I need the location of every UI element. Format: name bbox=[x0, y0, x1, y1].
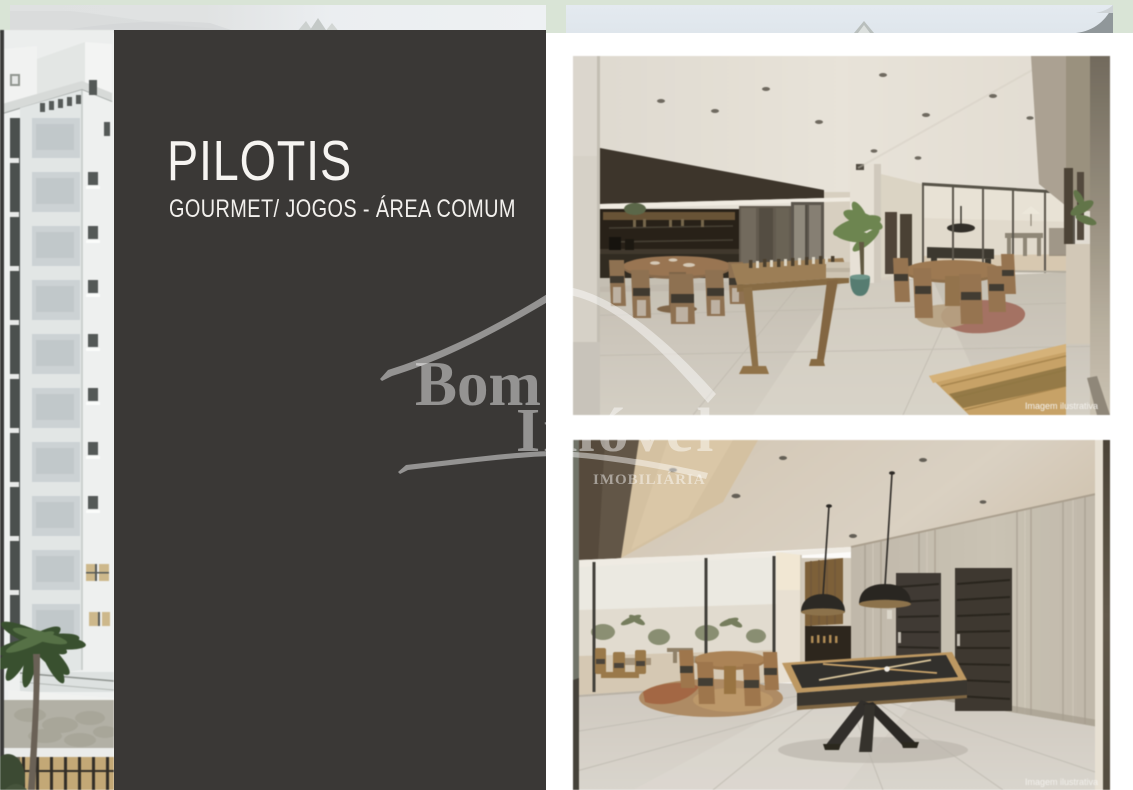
svg-text:Imagem ilustrativa: Imagem ilustrativa bbox=[1025, 401, 1098, 411]
svg-text:Imagem ilustrativa: Imagem ilustrativa bbox=[1025, 777, 1098, 787]
svg-text:Imóvel: Imóvel bbox=[516, 397, 717, 465]
svg-text:IMOBILIÁRIA: IMOBILIÁRIA bbox=[593, 471, 706, 488]
